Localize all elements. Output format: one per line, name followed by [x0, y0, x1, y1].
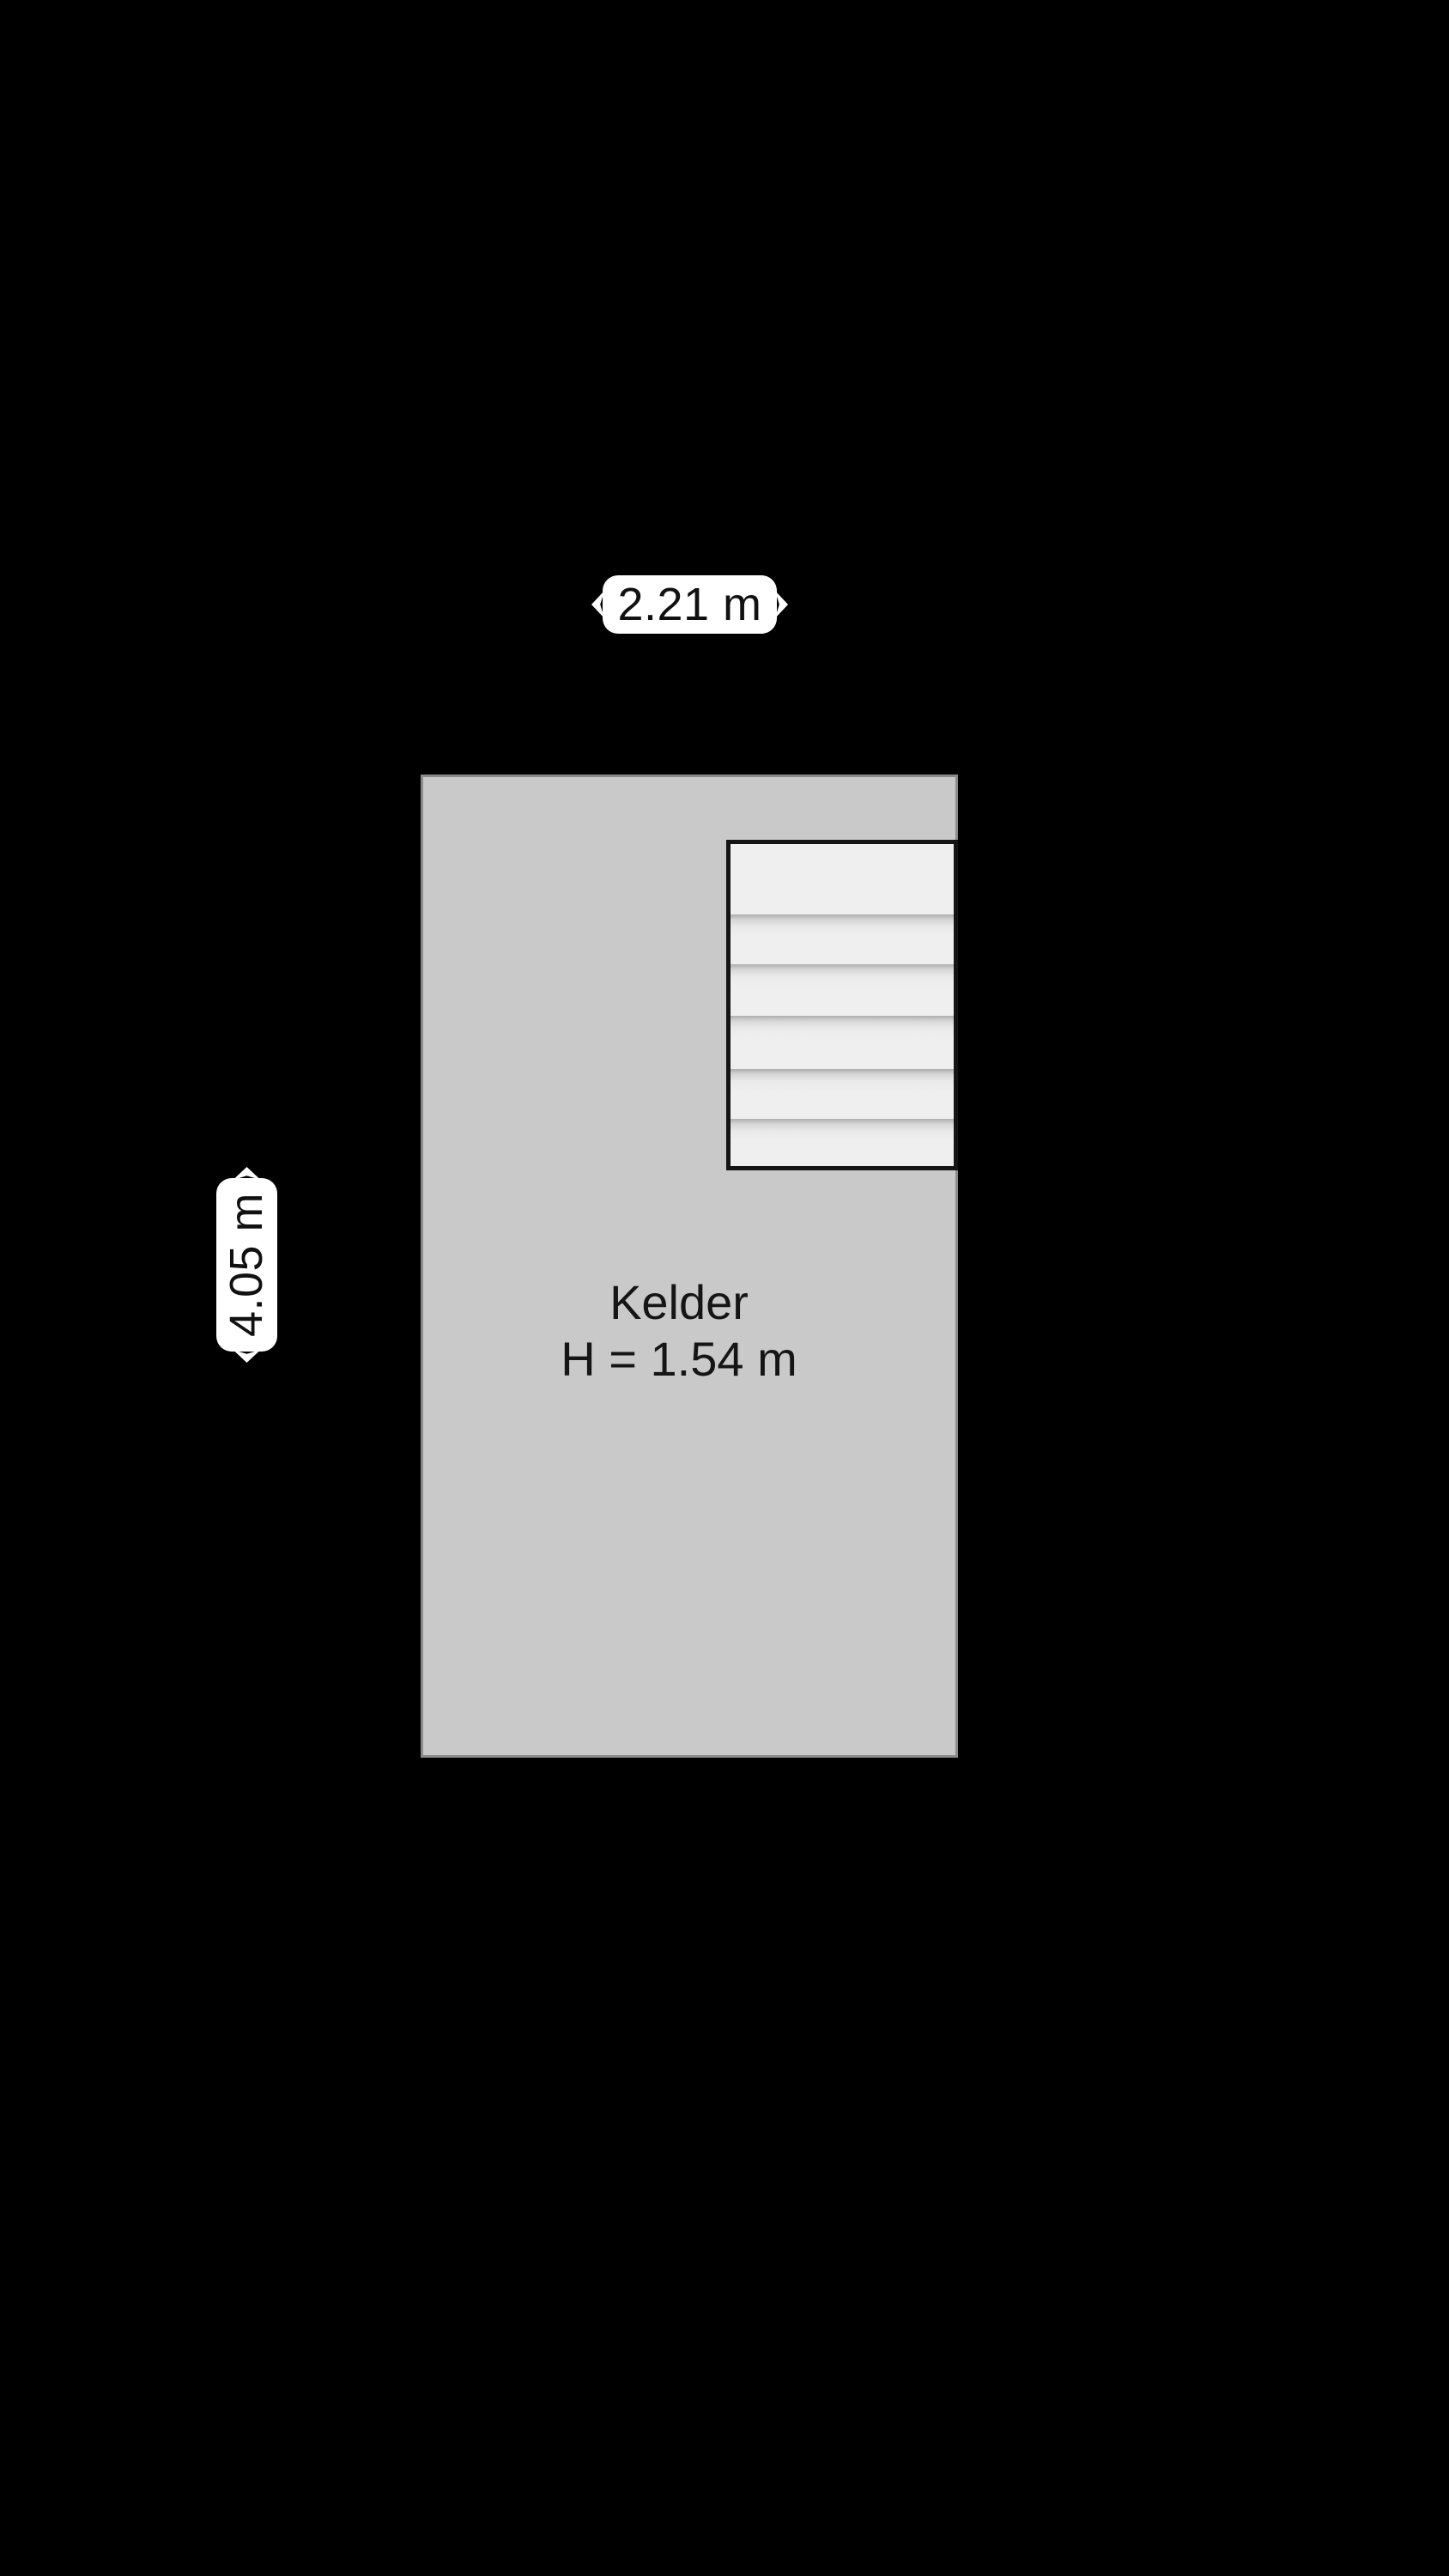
stair-tread	[731, 1069, 954, 1119]
dimension-label-height: 4.05 m	[216, 1178, 277, 1352]
dimension-width-value: 2.21 m	[617, 578, 761, 631]
dimension-arrow-up-icon	[233, 1167, 261, 1180]
dimension-arrow-left-icon	[591, 591, 604, 618]
room-name: Kelder	[421, 1274, 937, 1331]
dimension-label-width: 2.21 m	[603, 575, 777, 634]
stair-tread	[731, 1016, 954, 1069]
dimension-arrow-right-icon	[775, 591, 788, 618]
stair-tread	[731, 844, 954, 914]
floorplan-canvas: 2.21 m 4.05 m Kelder H = 1.54 m	[0, 0, 1449, 2576]
dimension-height-value: 4.05 m	[221, 1193, 274, 1337]
stair-tread	[731, 1119, 954, 1166]
dimension-arrow-down-icon	[233, 1350, 261, 1363]
room-ceiling-height: H = 1.54 m	[421, 1331, 937, 1388]
staircase	[726, 840, 958, 1170]
stair-tread	[731, 964, 954, 1016]
room-label: Kelder H = 1.54 m	[421, 1274, 937, 1388]
stair-tread	[731, 914, 954, 964]
